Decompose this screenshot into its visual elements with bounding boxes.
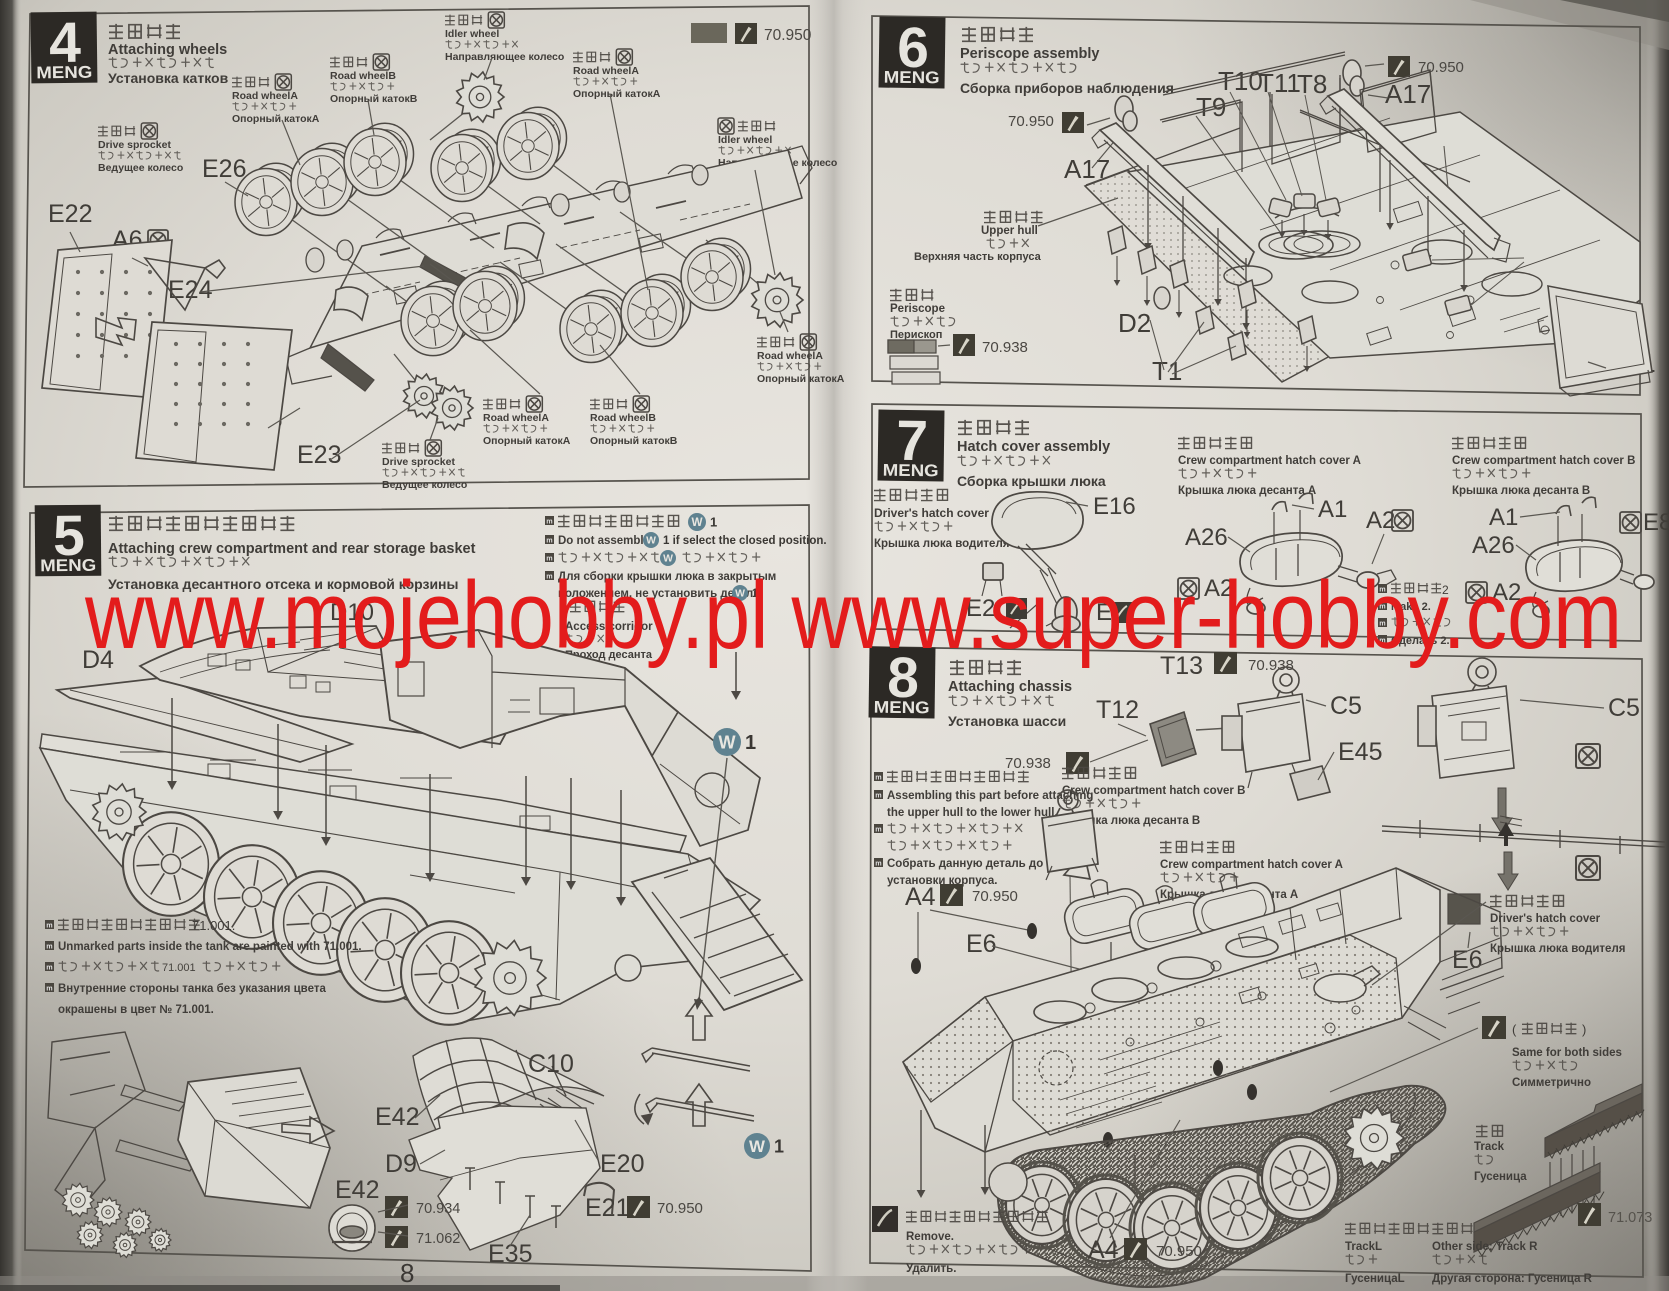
- svg-text:m: m: [875, 824, 881, 833]
- svg-text:Other side: Track R: Other side: Track R: [1432, 1241, 1538, 1253]
- svg-text:Внутренние стороны танка без у: Внутренние стороны танка без указания цв…: [58, 983, 326, 995]
- svg-text:Crew compartment hatch cover A: Crew compartment hatch cover A: [1160, 859, 1343, 871]
- svg-text:E42: E42: [375, 1103, 419, 1131]
- svg-text:C5: C5: [1608, 694, 1640, 722]
- svg-text:Опорный катокA: Опорный катокA: [757, 373, 845, 385]
- svg-text:E45: E45: [1338, 738, 1382, 766]
- svg-text:Ведущее колесо: Ведущее колесо: [382, 479, 467, 491]
- svg-text:Driver's hatch cover: Driver's hatch cover: [1490, 913, 1601, 925]
- svg-text:m: m: [46, 983, 52, 992]
- svg-text:1: 1: [710, 515, 717, 530]
- svg-text:Road wheelA: Road wheelA: [573, 65, 639, 77]
- svg-text:Установка катков: Установка катков: [108, 70, 229, 86]
- svg-text:Опорный катокA: Опорный катокA: [483, 435, 571, 447]
- svg-text:70.938: 70.938: [982, 339, 1028, 356]
- svg-text:Гусеница: Гусеница: [1474, 1171, 1527, 1183]
- svg-text:MENG: MENG: [36, 63, 92, 83]
- svg-text:W: W: [646, 536, 656, 547]
- svg-text:MENG: MENG: [884, 68, 940, 88]
- svg-text:A4: A4: [1088, 1236, 1119, 1264]
- svg-text:E35: E35: [488, 1240, 532, 1268]
- svg-text:m: m: [546, 535, 552, 544]
- svg-text:Drive sprocket: Drive sprocket: [382, 456, 455, 468]
- svg-text:Unmarked parts inside the tank: Unmarked parts inside the tank are paint…: [58, 941, 362, 953]
- svg-text:Крышка люка десанта A: Крышка люка десанта A: [1178, 485, 1316, 497]
- svg-text:MENG: MENG: [874, 698, 930, 718]
- svg-text:m: m: [46, 920, 52, 929]
- svg-text:E16: E16: [1093, 493, 1136, 520]
- svg-text:T8: T8: [1297, 69, 1327, 99]
- svg-text:m: m: [875, 772, 881, 781]
- svg-text:Крышка люка десанта B: Крышка люка десанта B: [1452, 485, 1590, 497]
- svg-text:C10: C10: [528, 1050, 574, 1078]
- svg-text:W: W: [718, 732, 736, 752]
- svg-text:Road wheelB: Road wheelB: [590, 412, 656, 424]
- svg-text:www.mojehobby.pl www.super-hob: www.mojehobby.pl www.super-hobby.com: [84, 562, 1622, 669]
- svg-text:C5: C5: [1330, 692, 1362, 720]
- svg-text:70.950: 70.950: [972, 888, 1018, 905]
- svg-text:Periscope assembly: Periscope assembly: [960, 46, 1099, 62]
- svg-text:MENG: MENG: [883, 461, 939, 481]
- svg-text:E42: E42: [335, 1176, 379, 1204]
- svg-text:Установка шасси: Установка шасси: [948, 713, 1066, 729]
- svg-text:Сборка приборов наблюдения: Сборка приборов наблюдения: [960, 80, 1174, 96]
- svg-text:1 if select the closed positio: 1 if select the closed position.: [663, 535, 827, 547]
- svg-text:Attaching wheels: Attaching wheels: [108, 42, 227, 58]
- svg-text:E23: E23: [297, 441, 341, 469]
- svg-text:Перископ: Перископ: [890, 329, 942, 341]
- svg-text:70.950: 70.950: [764, 27, 812, 44]
- svg-text:A1: A1: [1318, 496, 1347, 523]
- svg-text:W: W: [749, 1137, 765, 1156]
- svg-text:TrackL: TrackL: [1345, 1241, 1382, 1253]
- svg-text:E22: E22: [48, 200, 92, 228]
- svg-text:Remove.: Remove.: [906, 1231, 954, 1243]
- svg-text:Attaching chassis: Attaching chassis: [948, 679, 1072, 695]
- svg-text:Hatch cover assembly: Hatch cover assembly: [957, 439, 1110, 455]
- svg-text:A1: A1: [1489, 504, 1518, 531]
- svg-text:Crew compartment hatch cover B: Crew compartment hatch cover B: [1452, 455, 1635, 467]
- svg-text:D9: D9: [385, 1150, 417, 1178]
- svg-text:Другая сторона: Гусеница R: Другая сторона: Гусеница R: [1432, 1273, 1593, 1285]
- svg-text:A26: A26: [1472, 532, 1515, 559]
- svg-text:Симметрично: Симметрично: [1512, 1077, 1591, 1089]
- svg-text:Опорный катокA: Опорный катокA: [573, 88, 661, 100]
- svg-text:m: m: [875, 790, 881, 799]
- svg-text:Направляющее колесо: Направляющее колесо: [445, 51, 564, 63]
- svg-text:the upper hull to the lower hu: the upper hull to the lower hull.: [887, 807, 1058, 819]
- svg-text:ГусеницаL: ГусеницаL: [1345, 1273, 1405, 1285]
- svg-text:Same for both sides: Same for both sides: [1512, 1047, 1622, 1059]
- svg-text:Крышка люка водителя: Крышка люка водителя: [874, 538, 1009, 550]
- svg-text:): ): [1582, 1022, 1586, 1037]
- svg-text:Собрать данную деталь до: Собрать данную деталь до: [887, 858, 1043, 870]
- svg-text:70.934: 70.934: [416, 1201, 460, 1217]
- svg-text:m: m: [46, 941, 52, 950]
- svg-text:A4: A4: [905, 883, 936, 911]
- svg-text:E6: E6: [966, 930, 997, 958]
- svg-text:Idler wheel: Idler wheel: [718, 134, 772, 146]
- svg-text:Drive sprocket: Drive sprocket: [98, 139, 171, 151]
- svg-text:E20: E20: [600, 1150, 644, 1178]
- svg-text:Опорный катокA: Опорный катокA: [232, 113, 320, 125]
- svg-text:Опорный катокB: Опорный катокB: [590, 435, 678, 447]
- svg-text:Крышка люка водителя: Крышка люка водителя: [1490, 943, 1625, 955]
- svg-text:70.950: 70.950: [657, 1200, 703, 1217]
- svg-text:(: (: [1512, 1022, 1517, 1037]
- svg-text:Road wheelA: Road wheelA: [483, 412, 549, 424]
- svg-text:A26: A26: [1185, 524, 1228, 551]
- svg-text:Periscope: Periscope: [890, 303, 945, 315]
- svg-text:Attaching crew compartment and: Attaching crew compartment and rear stor…: [108, 541, 476, 557]
- svg-text:71.073: 71.073: [1608, 1210, 1652, 1226]
- svg-text:71.001.: 71.001.: [192, 918, 235, 933]
- svg-text:Do not assemble: Do not assemble: [558, 535, 650, 547]
- svg-text:E8: E8: [1643, 509, 1669, 536]
- svg-text:70.938: 70.938: [1005, 755, 1051, 772]
- svg-text:70.950: 70.950: [1008, 113, 1054, 130]
- svg-text:Upper hull: Upper hull: [981, 225, 1038, 237]
- svg-text:Road wheelA: Road wheelA: [232, 90, 298, 102]
- svg-text:8: 8: [400, 1258, 414, 1288]
- svg-text:E21: E21: [585, 1194, 629, 1222]
- svg-text:Driver's hatch cover: Driver's hatch cover: [874, 506, 989, 520]
- svg-text:Сборка крышки люка: Сборка крышки люка: [957, 473, 1106, 489]
- svg-text:1: 1: [774, 1137, 784, 1157]
- svg-text:m: m: [546, 516, 552, 525]
- svg-text:1: 1: [745, 732, 756, 754]
- svg-text:Road wheelB: Road wheelB: [330, 70, 396, 82]
- svg-text:W: W: [691, 516, 703, 529]
- svg-text:Верхняя часть корпуса: Верхняя часть корпуса: [914, 251, 1042, 263]
- svg-text:Track: Track: [1474, 1141, 1505, 1153]
- svg-text:E26: E26: [202, 155, 246, 183]
- svg-text:Idler wheel: Idler wheel: [445, 28, 499, 40]
- svg-text:A2: A2: [1366, 507, 1395, 534]
- svg-text:71.001: 71.001: [162, 962, 196, 974]
- svg-text:m: m: [46, 962, 52, 971]
- svg-text:Crew compartment hatch cover A: Crew compartment hatch cover A: [1178, 455, 1361, 467]
- svg-text:T12: T12: [1096, 696, 1139, 724]
- svg-text:Ведущее колесо: Ведущее колесо: [98, 162, 183, 174]
- svg-text:Удалить.: Удалить.: [906, 1263, 956, 1275]
- svg-text:Опорный катокB: Опорный катокB: [330, 93, 418, 105]
- svg-text:71.062: 71.062: [416, 1231, 460, 1247]
- svg-text:Road wheelA: Road wheelA: [757, 350, 823, 362]
- svg-text:окрашены в цвет № 71.001.: окрашены в цвет № 71.001.: [58, 1004, 214, 1016]
- svg-text:D2: D2: [1118, 308, 1151, 338]
- svg-text:m: m: [875, 858, 881, 867]
- svg-text:70.950: 70.950: [1156, 1243, 1202, 1260]
